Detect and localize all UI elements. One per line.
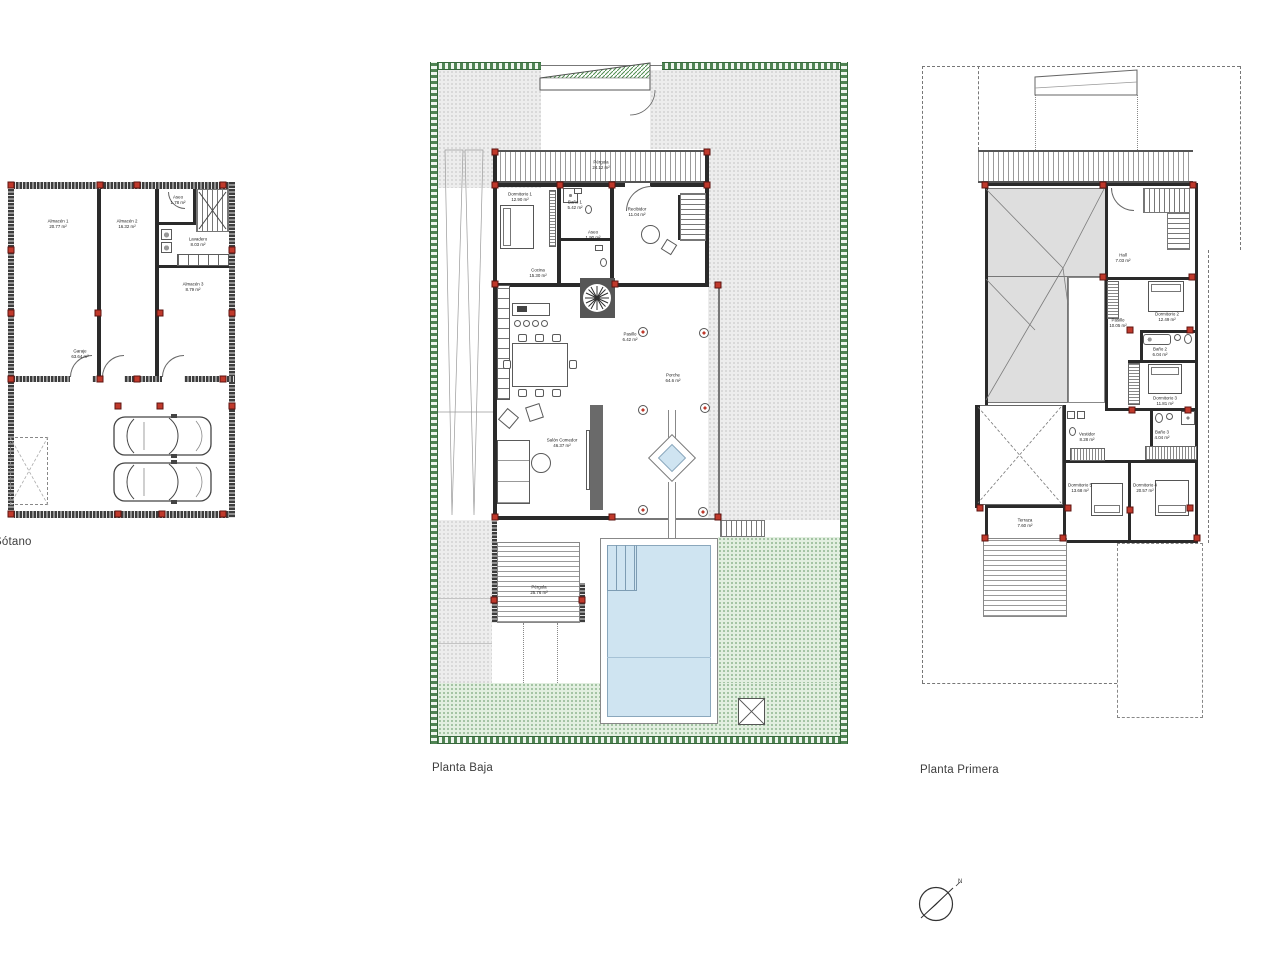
car-icon bbox=[112, 413, 214, 459]
plan-title-planta-primera: Planta Primera bbox=[920, 764, 999, 776]
room-label-lavadero: Lavadero8.03 m² bbox=[189, 237, 207, 248]
bed-pillow bbox=[1158, 505, 1186, 513]
projection-line bbox=[557, 623, 558, 683]
column-marker bbox=[230, 404, 235, 409]
wardrobe-icon bbox=[549, 190, 556, 247]
column-marker bbox=[978, 506, 983, 511]
column-marker bbox=[983, 536, 988, 541]
chair-icon bbox=[535, 389, 544, 397]
washer-icon bbox=[161, 229, 172, 240]
kitchen-counter bbox=[497, 285, 510, 400]
room-label-vestidor: Vestidor8.28 m² bbox=[1079, 432, 1095, 443]
column-marker bbox=[9, 377, 14, 382]
boundary-dashed bbox=[922, 66, 1240, 67]
column-marker bbox=[1130, 408, 1135, 413]
bed-icon bbox=[1148, 281, 1184, 312]
wardrobe-icon bbox=[1070, 448, 1105, 461]
sink-icon bbox=[1166, 413, 1173, 420]
room-label-bano3: Baño 34.04 m² bbox=[1155, 430, 1170, 441]
wall bbox=[615, 283, 709, 287]
porch-column-icon bbox=[638, 405, 648, 415]
washer-icon bbox=[161, 242, 172, 253]
wardrobe-icon bbox=[1107, 281, 1119, 319]
staircase bbox=[1167, 213, 1190, 250]
column-marker bbox=[158, 404, 163, 409]
stool-icon bbox=[541, 320, 548, 327]
patio-planter bbox=[580, 278, 615, 318]
column-marker bbox=[1128, 328, 1133, 333]
column-marker bbox=[1188, 506, 1193, 511]
chair-icon bbox=[535, 334, 544, 342]
projection-line bbox=[1137, 95, 1138, 150]
garden-steps bbox=[720, 520, 765, 537]
room-label-pergola-sur: Pérgola25.76 m² bbox=[530, 585, 547, 596]
porch-edge bbox=[612, 518, 720, 520]
bed-icon bbox=[1155, 480, 1189, 516]
wall bbox=[1063, 405, 1066, 543]
column-marker bbox=[221, 512, 226, 517]
porch-column-icon bbox=[638, 505, 648, 515]
projection-line bbox=[1035, 95, 1036, 150]
column-marker bbox=[1190, 275, 1195, 280]
wardrobe-icon bbox=[1128, 363, 1140, 405]
column-marker bbox=[9, 183, 14, 188]
column-marker bbox=[135, 183, 140, 188]
door-arc bbox=[102, 355, 124, 377]
wall bbox=[8, 511, 235, 518]
column-marker bbox=[221, 377, 226, 382]
hedge-border bbox=[662, 62, 848, 70]
column-marker bbox=[158, 311, 163, 316]
column-marker bbox=[716, 515, 721, 520]
hedge-border bbox=[840, 62, 848, 744]
room-label-pasillo: Pasillo6.42 m² bbox=[623, 332, 638, 343]
paving-joint bbox=[438, 643, 492, 644]
paving-path bbox=[438, 520, 492, 683]
wall bbox=[1105, 277, 1198, 280]
wall bbox=[1195, 183, 1198, 543]
column-marker bbox=[9, 512, 14, 517]
wall bbox=[159, 222, 196, 225]
toilet-icon bbox=[585, 205, 592, 214]
column-marker bbox=[230, 248, 235, 253]
boundary-dashed bbox=[978, 66, 979, 150]
room-label-aseo: Aseo1.78 m² bbox=[171, 195, 186, 206]
paving-area bbox=[650, 70, 840, 149]
sink-icon bbox=[1077, 411, 1085, 419]
sink-icon bbox=[1067, 411, 1075, 419]
column-marker bbox=[135, 377, 140, 382]
drain-square bbox=[738, 698, 765, 725]
armchair-icon bbox=[525, 403, 544, 422]
wall bbox=[985, 505, 1066, 508]
room-label-dormitorio5: Dormitorio 513.68 m² bbox=[1068, 483, 1092, 494]
porch-column-icon bbox=[698, 507, 708, 517]
sofa-icon bbox=[497, 440, 530, 504]
bed-icon bbox=[500, 205, 534, 249]
room-label-terraza: Terraza7.60 m² bbox=[1018, 518, 1033, 529]
room-label-almacen2: Almacén 216.32 m² bbox=[117, 219, 138, 230]
room-label-dormitorio2: Dormitorio 212.49 m² bbox=[1155, 312, 1179, 323]
column-marker bbox=[116, 404, 121, 409]
column-marker bbox=[613, 282, 618, 287]
sink-icon bbox=[574, 188, 582, 194]
stool-icon bbox=[532, 320, 539, 327]
wall bbox=[184, 376, 235, 382]
shower-icon bbox=[1181, 411, 1195, 425]
terrace-steps bbox=[983, 538, 1067, 617]
chair-icon bbox=[518, 389, 527, 397]
column-marker bbox=[9, 248, 14, 253]
column-marker bbox=[705, 150, 710, 155]
hob-icon bbox=[517, 306, 527, 312]
column-marker bbox=[983, 183, 988, 188]
column-marker bbox=[221, 183, 226, 188]
column-marker bbox=[1101, 275, 1106, 280]
room-label-recibidor: Recibidor11.04 m² bbox=[628, 207, 647, 218]
wall bbox=[985, 183, 988, 408]
column-marker bbox=[1101, 183, 1106, 188]
room-label-pasillo: Pasillo10.05 m² bbox=[1109, 318, 1126, 329]
wall bbox=[557, 183, 561, 283]
floor-plan-sotano: Almacén 120.77 m² Almacén 216.32 m² Aseo… bbox=[0, 150, 260, 570]
wall bbox=[1128, 460, 1131, 540]
wall bbox=[985, 183, 1198, 186]
room-label-garaje: Garaje63.64 m² bbox=[71, 349, 88, 360]
drawing-sheet: Almacén 120.77 m² Almacén 216.32 m² Aseo… bbox=[0, 0, 1280, 960]
column-marker bbox=[610, 183, 615, 188]
pergola-slats bbox=[497, 542, 580, 623]
room-label-pergola-norte: Pérgola24.12 m² bbox=[592, 160, 609, 171]
chair-icon bbox=[661, 239, 678, 256]
flat-roof-strip bbox=[1068, 277, 1105, 403]
column-marker bbox=[1191, 183, 1196, 188]
pool-joint-line bbox=[607, 657, 711, 658]
car-icon bbox=[112, 459, 214, 505]
door-arc bbox=[1111, 188, 1134, 211]
round-table-icon bbox=[641, 225, 660, 244]
column-marker bbox=[96, 311, 101, 316]
room-label-almacen3: Almacén 38.79 m² bbox=[183, 282, 204, 293]
room-label-dormitorio1: Dormitorio 112.90 m² bbox=[508, 192, 532, 203]
column-marker bbox=[98, 183, 103, 188]
bed-pillow bbox=[1151, 367, 1179, 375]
bed-icon bbox=[1091, 483, 1123, 516]
wall bbox=[1150, 408, 1153, 450]
wall bbox=[97, 189, 101, 376]
footprint-dashed bbox=[1117, 543, 1203, 718]
wall bbox=[124, 376, 162, 382]
column-marker bbox=[1188, 328, 1193, 333]
staircase bbox=[196, 189, 229, 232]
staircase bbox=[680, 193, 706, 241]
column-marker bbox=[160, 512, 165, 517]
toilet-icon bbox=[600, 258, 607, 267]
sink-icon bbox=[1174, 334, 1181, 341]
wall bbox=[229, 182, 235, 518]
wall bbox=[155, 189, 159, 376]
room-label-porche: Porche64.6 m² bbox=[666, 373, 681, 384]
bed-pillow bbox=[1094, 505, 1120, 513]
compass-icon bbox=[903, 874, 978, 936]
pergola-strip bbox=[978, 150, 1193, 183]
column-marker bbox=[558, 183, 563, 188]
column-marker bbox=[493, 515, 498, 520]
chair-icon bbox=[518, 334, 527, 342]
dining-table-icon bbox=[512, 343, 568, 387]
column-marker bbox=[1195, 536, 1200, 541]
plan-title-planta-baja: Planta Baja bbox=[432, 762, 493, 774]
porch-column-icon bbox=[700, 403, 710, 413]
plan-title-sotano: Sótano bbox=[0, 536, 32, 548]
roof-area bbox=[985, 277, 1068, 403]
sink-icon bbox=[595, 245, 603, 251]
ramp-outline bbox=[10, 437, 48, 505]
chair-icon bbox=[552, 334, 561, 342]
chair-icon bbox=[552, 389, 561, 397]
column-marker bbox=[492, 598, 497, 603]
roof-area bbox=[985, 188, 1105, 277]
room-label-hall: Hall7.03 m² bbox=[1116, 253, 1131, 264]
porch-column-icon bbox=[638, 327, 648, 337]
pergola-pillar bbox=[580, 583, 585, 623]
wall bbox=[610, 183, 614, 283]
column-marker bbox=[230, 311, 235, 316]
bed-pillow bbox=[503, 208, 511, 246]
room-label-aseo: Aseo1.90 m² bbox=[586, 230, 601, 241]
room-label-bano1: Baño 15.42 m² bbox=[568, 200, 583, 211]
column-marker bbox=[1061, 536, 1066, 541]
wall bbox=[8, 376, 70, 382]
column-marker bbox=[705, 183, 710, 188]
coffee-table-icon bbox=[531, 453, 551, 473]
column-marker bbox=[1128, 508, 1133, 513]
column-marker bbox=[1186, 408, 1191, 413]
chair-icon bbox=[569, 360, 577, 369]
room-label-dormitorio4: Dormitorio 420.57 m² bbox=[1133, 483, 1157, 494]
bathtub-icon bbox=[1143, 334, 1171, 345]
floor-plan-planta-primera: Hall7.03 m² Pasillo10.05 m² Dormitorio 2… bbox=[915, 55, 1255, 735]
wall bbox=[975, 405, 980, 508]
wardrobe-icon bbox=[1145, 446, 1197, 460]
paving-area bbox=[708, 149, 840, 520]
column-marker bbox=[716, 283, 721, 288]
room-label-almacen1: Almacén 120.77 m² bbox=[48, 219, 69, 230]
column-marker bbox=[493, 183, 498, 188]
toilet-icon bbox=[1069, 427, 1076, 436]
hedge-border bbox=[430, 62, 438, 744]
stool-icon bbox=[523, 320, 530, 327]
column-marker bbox=[610, 515, 615, 520]
wall bbox=[8, 182, 235, 189]
bed-icon bbox=[1148, 364, 1182, 394]
toilet-icon bbox=[1184, 334, 1192, 344]
media-wall bbox=[590, 405, 603, 510]
void-outline bbox=[975, 405, 1063, 505]
boundary-dashed bbox=[922, 66, 923, 683]
chair-icon bbox=[503, 360, 511, 369]
floor-plan-planta-baja: Pérgola24.12 m² Dormitorio 112.90 m² Bañ… bbox=[425, 55, 855, 780]
column-marker bbox=[98, 377, 103, 382]
wall bbox=[493, 516, 613, 520]
boundary-dashed bbox=[922, 683, 1117, 684]
column-marker bbox=[9, 311, 14, 316]
laundry-counter bbox=[177, 254, 229, 266]
armchair-icon bbox=[498, 408, 519, 429]
door-arc bbox=[162, 355, 184, 377]
bed-pillow bbox=[1151, 284, 1181, 292]
toilet-icon bbox=[1155, 413, 1163, 423]
pool-steps bbox=[607, 545, 637, 591]
boundary-dashed bbox=[1240, 66, 1241, 250]
column-marker bbox=[493, 150, 498, 155]
tv-icon bbox=[586, 430, 590, 490]
room-label-cocina: Cocina15.30 m² bbox=[529, 268, 546, 279]
porch-edge bbox=[718, 285, 720, 518]
column-marker bbox=[493, 282, 498, 287]
room-label-dormitorio3: Dormitorio 311.81 m² bbox=[1153, 396, 1177, 407]
room-label-salon: Salón Comedor46.37 m² bbox=[547, 438, 578, 449]
column-marker bbox=[116, 512, 121, 517]
column-marker bbox=[1066, 506, 1071, 511]
gate-line bbox=[541, 65, 662, 66]
fountain-path bbox=[668, 482, 676, 538]
projection-line bbox=[523, 623, 524, 683]
stool-icon bbox=[514, 320, 521, 327]
boundary-dashed bbox=[1208, 250, 1209, 543]
compass-north-label: N bbox=[958, 879, 962, 885]
column-marker bbox=[580, 598, 585, 603]
hedge-border bbox=[430, 62, 541, 70]
staircase bbox=[1143, 188, 1190, 213]
room-label-bano2: Baño 26.04 m² bbox=[1153, 347, 1168, 358]
hedge-border bbox=[430, 736, 848, 744]
porch-column-icon bbox=[699, 328, 709, 338]
paving-joint bbox=[438, 598, 492, 599]
wall bbox=[650, 183, 709, 187]
